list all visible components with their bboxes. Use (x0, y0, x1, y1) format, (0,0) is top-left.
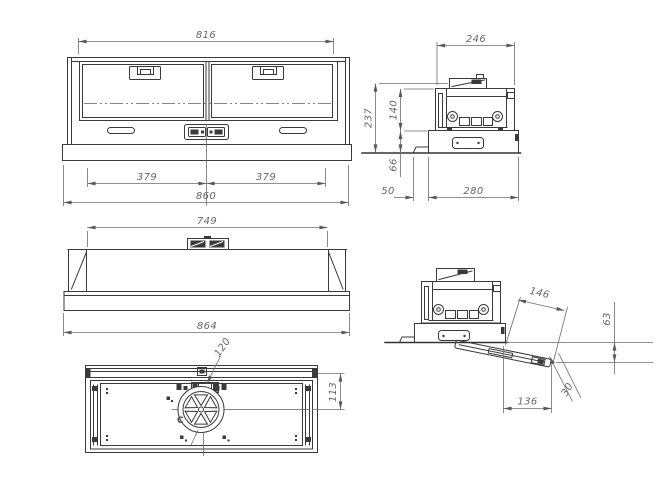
grease-filter-left (83, 65, 204, 118)
vent-slot-left (108, 128, 135, 134)
dimension-inner-width: 749 (88, 216, 328, 247)
bottom-view: C 120 113 (86, 336, 345, 456)
dimension-overall-width: 864 (64, 313, 350, 336)
dim-label-816: 816 (196, 30, 216, 41)
slide-rail (439, 94, 443, 128)
dim-label-63: 63 (602, 312, 613, 326)
vent-slot-right (280, 128, 307, 134)
side-view-open: 146 63 30 136 (385, 269, 653, 414)
mounting-flange-2 (400, 337, 415, 343)
junction-box (188, 236, 229, 250)
technical-drawing-page: 816 (0, 0, 663, 491)
hood-body-side-2 (385, 282, 507, 343)
dim-label-280: 280 (463, 186, 483, 197)
dimension-visor-angle: 30 (550, 353, 582, 402)
plinth-front-2 (64, 292, 350, 311)
dimension-top-width: 816 (79, 30, 334, 54)
plinth-side (429, 131, 519, 154)
plinth-side-2 (415, 324, 506, 343)
roller-front (448, 112, 458, 122)
dimension-outlet-offset: 113 (312, 374, 345, 410)
dim-label-379-left: 379 (137, 172, 157, 183)
grease-filter-right (212, 65, 333, 118)
exhaust-outlet-fan (178, 387, 224, 433)
chimney-duct-2 (437, 269, 475, 282)
dimension-upper-height: 140 (389, 89, 435, 131)
center-leader-line (191, 430, 198, 445)
center-mark-label: C (177, 416, 184, 426)
filter-handle-right (253, 67, 284, 80)
dim-label-120: 120 (213, 336, 234, 359)
dim-label-146: 146 (528, 286, 550, 301)
front-view-closed: 816 (63, 30, 352, 206)
mounting-flange (414, 147, 429, 153)
damper-flap (472, 80, 482, 85)
dim-label-113: 113 (328, 382, 339, 402)
dim-label-140: 140 (389, 100, 400, 120)
hood-body-front-2 (64, 250, 350, 311)
front-view-open: 749 864 (64, 216, 350, 336)
dim-label-860: 860 (196, 191, 216, 202)
filter-handle-left (130, 67, 161, 80)
dim-label-237: 237 (364, 108, 375, 129)
roller-rear (493, 112, 503, 122)
dim-label-749: 749 (197, 216, 217, 227)
dim-label-50: 50 (381, 186, 395, 197)
dimension-body-width: 860 (64, 165, 349, 206)
dim-label-136: 136 (517, 397, 537, 408)
plinth-front (63, 145, 352, 161)
dimension-visor-projection: 136 (504, 346, 552, 413)
dimension-top-depth: 246 (437, 34, 515, 85)
dimension-plinth-height: 66 (389, 131, 401, 177)
dimension-bottom-depth: 280 (429, 157, 519, 201)
dim-label-246: 246 (466, 34, 486, 45)
dim-label-379-right: 379 (256, 172, 276, 183)
hood-body-side (362, 89, 521, 154)
range-hood-technical-drawing: 816 (0, 0, 663, 491)
visor-flap (455, 340, 552, 367)
dim-label-66: 66 (389, 158, 400, 172)
chimney-duct (450, 75, 487, 89)
side-view-closed: 246 (362, 34, 521, 201)
dimension-outlet-diameter: 120 (207, 336, 233, 383)
dim-label-864: 864 (197, 321, 217, 332)
